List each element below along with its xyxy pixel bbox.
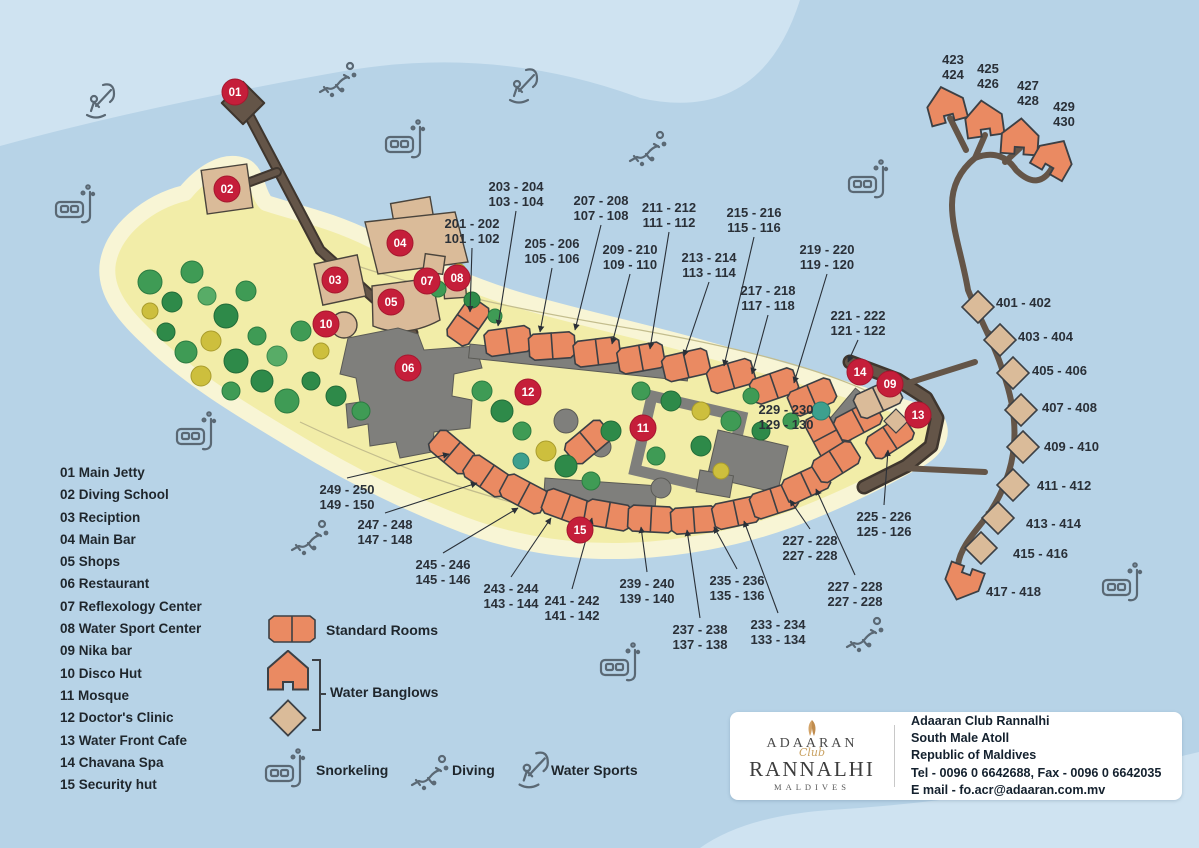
legend-snorkeling — [264, 748, 308, 797]
contact-telfax: Tel - 0096 0 6642688, Fax - 0096 0 66420… — [911, 765, 1182, 782]
legend-standard-rooms — [266, 614, 318, 649]
contact-card: ADAARAN Club RANNALHI MALDIVES Adaaran C… — [730, 712, 1182, 800]
legend-water-bungalows-label: Water Banglows — [330, 684, 438, 700]
room-number-label: 227 - 228227 - 228 — [783, 533, 838, 563]
marker-number: 14 — [854, 367, 867, 379]
marker-number: 01 — [229, 87, 242, 99]
marker-number: 08 — [451, 273, 464, 285]
facility-marker-04: 04 — [387, 230, 413, 256]
room-number-label: 209 - 210109 - 110 — [603, 242, 658, 272]
room-number-label: 405 - 406 — [1032, 363, 1087, 378]
facility-item: 02 Diving School — [60, 484, 202, 506]
facility-marker-07: 07 — [414, 268, 440, 294]
room-number-label: 225 - 226125 - 126 — [857, 509, 912, 539]
logo-maldives: MALDIVES — [774, 783, 850, 792]
marker-number: 02 — [221, 184, 234, 196]
room-number-label: 221 - 222121 - 122 — [831, 308, 886, 338]
facility-item: 08 Water Sport Center — [60, 618, 202, 640]
facility-item: 07 Reflexology Center — [60, 596, 202, 618]
room-number-label: 241 - 242141 - 142 — [545, 593, 600, 623]
legend-standard-rooms-label: Standard Rooms — [326, 622, 438, 638]
facility-marker-15: 15 — [567, 517, 593, 543]
legend-diving — [406, 750, 450, 799]
room-number-label: 243 - 244143 - 144 — [484, 581, 540, 611]
marker-number: 13 — [912, 410, 925, 422]
logo-leaf-icon — [799, 720, 825, 736]
room-number-label: 403 - 404 — [1018, 329, 1074, 344]
resort-logo: ADAARAN Club RANNALHI MALDIVES — [730, 720, 894, 792]
contact-address2: Republic of Maldives — [911, 747, 1182, 764]
facility-item: 11 Mosque — [60, 685, 202, 707]
marker-number: 06 — [402, 363, 415, 375]
facility-marker-13: 13 — [905, 402, 931, 428]
legend-snorkeling-label: Snorkeling — [316, 762, 388, 778]
legend-water-sports-label: Water Sports — [551, 762, 638, 778]
room-number-label: 219 - 220119 - 120 — [800, 242, 855, 272]
room-number-label: 411 - 412 — [1037, 478, 1091, 493]
standard-room-icon — [266, 614, 318, 644]
room-number-label: 211 - 212111 - 112 — [642, 200, 696, 230]
water-bungalow-diamond-icon — [270, 700, 305, 735]
facility-item: 10 Disco Hut — [60, 663, 202, 685]
contact-address1: South Male Atoll — [911, 730, 1182, 747]
room-number-label: 229 - 230129 - 130 — [759, 402, 814, 432]
marker-number: 10 — [320, 319, 333, 331]
facility-marker-14: 14 — [847, 359, 873, 385]
facilities-list: 01 Main Jetty02 Diving School03 Reciptio… — [60, 462, 202, 796]
facility-item: 14 Chavana Spa — [60, 752, 202, 774]
legend-water-sports — [506, 746, 552, 799]
legend-bracket — [312, 660, 326, 730]
room-number-label: 245 - 246145 - 146 — [416, 557, 471, 587]
contact-email: E mail - fo.acr@adaaran.com.mv — [911, 782, 1182, 799]
room-number-label: 249 - 250149 - 150 — [320, 482, 375, 512]
facility-marker-01: 01 — [222, 79, 248, 105]
facility-item: 15 Security hut — [60, 774, 202, 796]
room-number-label: 227 - 228227 - 228 — [828, 579, 883, 609]
marker-number: 12 — [522, 387, 535, 399]
room-number-label: 207 - 208107 - 108 — [574, 193, 629, 223]
room-number-label: 247 - 248147 - 148 — [358, 517, 413, 547]
water-bungalow-icon — [268, 651, 308, 690]
room-number-label: 233 - 234133 - 134 — [751, 617, 807, 647]
room-number-label: 429430 — [1053, 99, 1075, 129]
room-number-label: 205 - 206105 - 106 — [525, 236, 580, 266]
room-number-label: 417 - 418 — [986, 584, 1041, 599]
room-number-label: 237 - 238137 - 138 — [673, 622, 728, 652]
room-number-label: 413 - 414 — [1026, 516, 1082, 531]
facility-marker-10: 10 — [313, 311, 339, 337]
facility-marker-05: 05 — [378, 289, 404, 315]
facility-marker-11: 11 — [630, 415, 656, 441]
facility-item: 04 Main Bar — [60, 529, 202, 551]
room-number-label: 425426 — [977, 61, 999, 91]
marker-number: 07 — [421, 276, 434, 288]
marker-number: 11 — [637, 423, 650, 435]
facility-item: 06 Restaurant — [60, 573, 202, 595]
facility-marker-06: 06 — [395, 355, 421, 381]
room-number-label: 217 - 218117 - 118 — [741, 283, 796, 313]
facility-marker-09: 09 — [877, 371, 903, 397]
room-number-label: 409 - 410 — [1044, 439, 1099, 454]
facility-marker-08: 08 — [444, 265, 470, 291]
room-number-label: 427428 — [1017, 78, 1039, 108]
facility-item: 05 Shops — [60, 551, 202, 573]
facility-item: 12 Doctor's Clinic — [60, 707, 202, 729]
room-number-label: 423424 — [942, 52, 964, 82]
contact-name: Adaaran Club Rannalhi — [911, 713, 1182, 730]
room-number-label: 239 - 240139 - 140 — [620, 576, 675, 606]
room-number-label: 215 - 216115 - 116 — [727, 205, 782, 235]
room-number-label: 407 - 408 — [1042, 400, 1097, 415]
room-number-label: 203 - 204103 - 104 — [489, 179, 545, 209]
logo-rannalhi: RANNALHI — [749, 759, 875, 780]
marker-number: 05 — [385, 297, 398, 309]
marker-number: 15 — [574, 525, 587, 537]
marker-number: 03 — [329, 275, 342, 287]
facility-marker-02: 02 — [214, 176, 240, 202]
facility-item: 01 Main Jetty — [60, 462, 202, 484]
facility-item: 03 Reciption — [60, 507, 202, 529]
marker-number: 04 — [394, 238, 407, 250]
facility-item: 13 Water Front Cafe — [60, 730, 202, 752]
room-number-label: 235 - 236135 - 136 — [710, 573, 765, 603]
facility-marker-03: 03 — [322, 267, 348, 293]
facility-item: 09 Nika bar — [60, 640, 202, 662]
room-number-label: 415 - 416 — [1013, 546, 1068, 561]
facility-marker-12: 12 — [515, 379, 541, 405]
legend-diving-label: Diving — [452, 762, 495, 778]
room-number-label: 201 - 202101 - 102 — [445, 216, 500, 246]
marker-number: 09 — [884, 379, 897, 391]
room-number-label: 213 - 214113 - 114 — [682, 250, 738, 280]
room-number-label: 401 - 402 — [996, 295, 1051, 310]
